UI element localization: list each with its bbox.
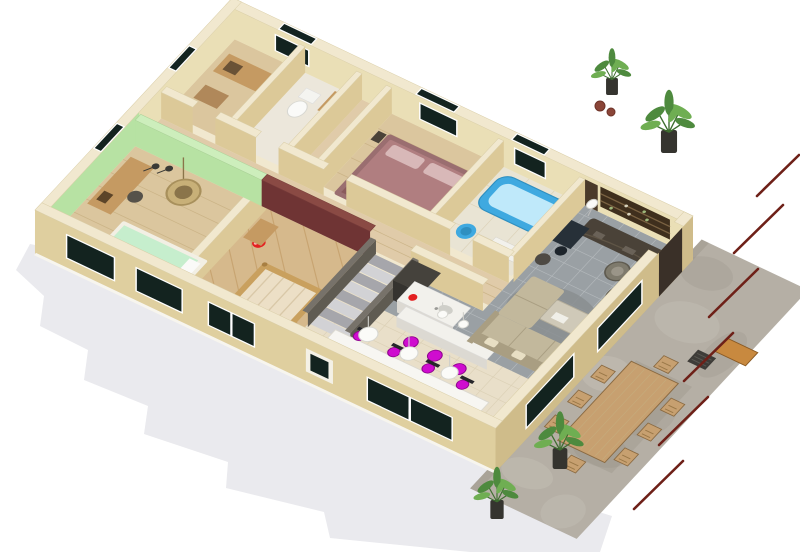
plant-shelf-left — [590, 48, 632, 95]
amphora-vase — [607, 108, 615, 116]
floorplan-svg — [0, 0, 800, 560]
plant-living-corner — [640, 90, 697, 153]
amphora-vase — [595, 101, 605, 111]
floorplan-render — [0, 0, 800, 560]
